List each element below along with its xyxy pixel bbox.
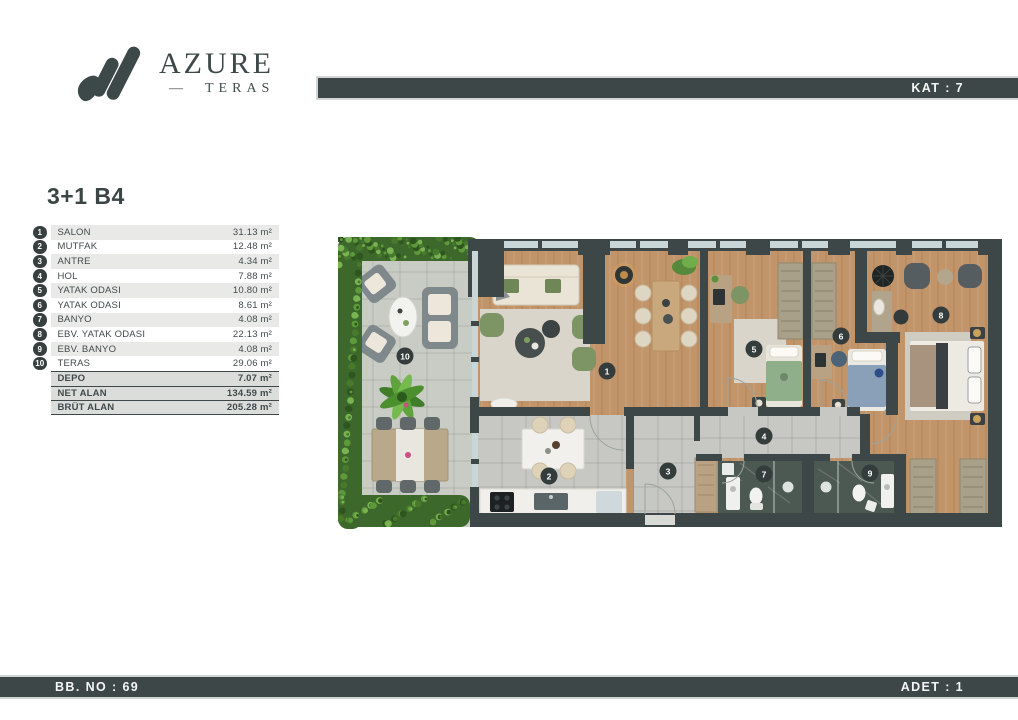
room-marker-10: 10: [397, 348, 414, 365]
stool: [560, 463, 576, 479]
terrace-chair: [400, 480, 416, 493]
legend-row: 6YATAK ODASI8.61 m²: [33, 298, 279, 313]
terrace-chair: [424, 417, 440, 430]
room-marker-8: 8: [933, 307, 950, 324]
dining-chair: [635, 331, 651, 347]
block-number-label: BB. NO : 69: [55, 680, 139, 694]
coffee-table: [515, 328, 545, 358]
bathroom-9: [814, 461, 896, 515]
legend-number-badge: 1: [33, 226, 47, 240]
legend-number-badge: 7: [33, 313, 47, 327]
svg-text:5: 5: [752, 345, 757, 355]
armchair: [958, 264, 982, 288]
armchair: [572, 347, 596, 371]
room-area: 7.88 m²: [238, 271, 272, 282]
pouf: [937, 269, 953, 285]
stool: [532, 417, 548, 433]
legend-row: 9EBV. BANYO4.08 m²: [33, 342, 279, 357]
room-name: SALON: [58, 227, 91, 238]
room-area: 22.13 m²: [233, 329, 272, 340]
room-name: YATAK ODASI: [58, 285, 121, 296]
legend-summary-row: BRÜT ALAN205.28 m²: [33, 400, 279, 415]
room-name: YATAK ODASI: [58, 300, 121, 311]
room-name: TERAS: [58, 358, 91, 369]
room-marker-2: 2: [541, 468, 558, 485]
toilet: [853, 485, 866, 502]
floor-plan: 1 2 3 4 5 6 7 8 9 10: [338, 237, 1015, 533]
room-legend: 1SALON31.13 m² 2MUTFAK12.48 m² 3ANTRE4.3…: [33, 225, 279, 415]
svg-text:3: 3: [666, 467, 671, 477]
room-area: 8.61 m²: [238, 300, 272, 311]
armchair: [480, 313, 504, 337]
terrace-chair: [424, 480, 440, 493]
shower-head: [821, 482, 832, 493]
quantity-label: ADET : 1: [901, 680, 964, 694]
svg-text:7: 7: [762, 470, 767, 480]
toilet: [750, 488, 763, 505]
dining-chair: [681, 331, 697, 347]
legend-row: 3ANTRE4.34 m²: [33, 254, 279, 269]
summary-name: DEPO: [58, 373, 86, 384]
stove: [490, 492, 514, 512]
legend-row: 8EBV. YATAK ODASI22.13 m²: [33, 327, 279, 342]
kitchen-island: [522, 429, 584, 469]
legend-number-badge: 6: [33, 299, 47, 313]
legend-number-badge: 3: [33, 255, 47, 269]
footer-bar: BB. NO : 69 ADET : 1: [0, 677, 1018, 697]
room-area: 4.08 m²: [238, 314, 272, 325]
svg-text:6: 6: [839, 332, 844, 342]
floor-bar: KAT : 7: [318, 78, 1018, 98]
summary-area: 205.28 m²: [227, 402, 272, 413]
brand-name: AZURE: [159, 50, 274, 78]
vanity: [881, 474, 894, 508]
room-area: 12.48 m²: [233, 241, 272, 252]
terrace-table: [389, 297, 417, 337]
room-area: 10.80 m²: [233, 285, 272, 296]
legend-row: 4HOL7.88 m²: [33, 269, 279, 284]
page: AZURE — TERAS KAT : 7 3+1 B4 1SALON31.13…: [0, 0, 1018, 720]
desk-chair: [731, 286, 749, 304]
legend-summary-row: NET ALAN134.59 m²: [33, 386, 279, 401]
room-marker-7: 7: [756, 466, 773, 483]
terrace-chair: [400, 417, 416, 430]
desk-chair: [831, 351, 847, 367]
legend-summary-row: DEPO7.07 m²: [33, 371, 279, 386]
room-name: BANYO: [58, 314, 92, 325]
dining-chair: [635, 308, 651, 324]
dining-chair: [681, 308, 697, 324]
room-area: 4.08 m²: [238, 344, 272, 355]
room-marker-9: 9: [862, 465, 879, 482]
dining-chair: [635, 285, 651, 301]
legend-number-badge: 2: [33, 240, 47, 254]
side-table: [542, 320, 560, 338]
legend-row: 1SALON31.13 m²: [33, 225, 279, 240]
svg-text:8: 8: [939, 311, 944, 321]
legend-number-badge: 9: [33, 342, 47, 356]
room-name: HOL: [58, 271, 78, 282]
terrace-chair: [376, 417, 392, 430]
room-name: EBV. BANYO: [58, 344, 117, 355]
summary-name: NET ALAN: [58, 388, 107, 399]
armchair: [904, 263, 930, 289]
room-marker-6: 6: [833, 328, 850, 345]
svg-text:9: 9: [868, 469, 873, 479]
svg-text:10: 10: [400, 352, 410, 362]
appliance: [596, 491, 622, 513]
summary-name: BRÜT ALAN: [58, 402, 115, 413]
stool: [894, 310, 909, 325]
svg-text:1: 1: [605, 367, 610, 377]
summary-area: 7.07 m²: [238, 373, 272, 384]
room-name: ANTRE: [58, 256, 91, 267]
brand-logo: AZURE — TERAS: [75, 44, 274, 108]
legend-number-badge: 8: [33, 328, 47, 342]
room-area: 31.13 m²: [233, 227, 272, 238]
legend-number-badge: 5: [33, 284, 47, 298]
room-area: 4.34 m²: [238, 256, 272, 267]
terrace-chair: [376, 480, 392, 493]
brand-subtitle: — TERAS: [159, 81, 274, 97]
room-marker-3: 3: [660, 463, 677, 480]
room-name: EBV. YATAK ODASI: [58, 329, 146, 340]
dining-chair: [681, 285, 697, 301]
legend-row: 2MUTFAK12.48 m²: [33, 240, 279, 255]
legend-number-badge: 10: [33, 357, 47, 371]
legend-number-badge: 4: [33, 269, 47, 283]
room-marker-5: 5: [746, 341, 763, 358]
room-marker-4: 4: [756, 428, 773, 445]
room-marker-1: 1: [599, 363, 616, 380]
floor-label: KAT : 7: [911, 81, 964, 95]
legend-row: 5YATAK ODASI10.80 m²: [33, 283, 279, 298]
unit-title: 3+1 B4: [47, 183, 125, 210]
room-name: MUTFAK: [58, 241, 98, 252]
svg-text:2: 2: [547, 472, 552, 482]
legend-row: 10TERAS29.06 m²: [33, 356, 279, 371]
svg-text:4: 4: [762, 432, 767, 442]
summary-area: 134.59 m²: [227, 388, 272, 399]
shower-head: [783, 482, 794, 493]
stool: [560, 417, 576, 433]
room-area: 29.06 m²: [233, 358, 272, 369]
legend-row: 7BANYO4.08 m²: [33, 313, 279, 328]
hall-floor: [696, 414, 860, 458]
brand-logo-icon: [75, 44, 145, 108]
